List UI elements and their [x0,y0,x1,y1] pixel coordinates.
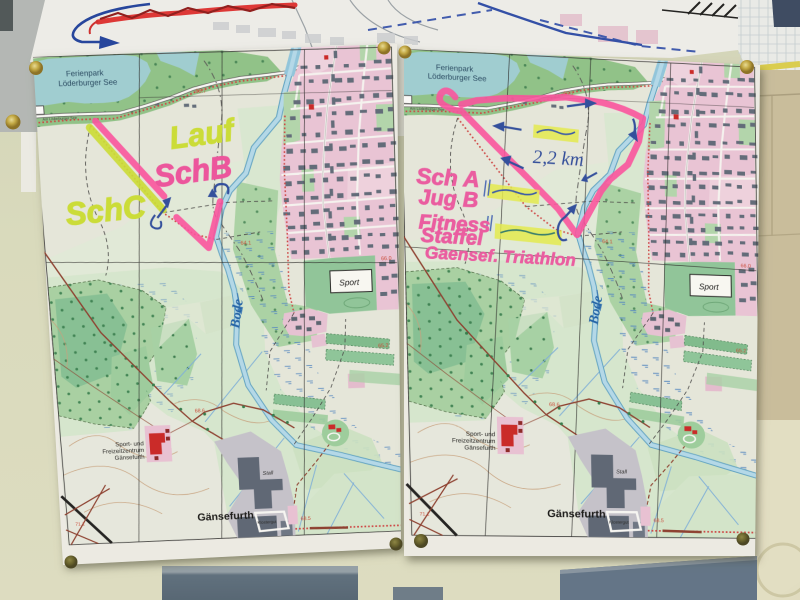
svg-text:2,2 km: 2,2 km [533,147,584,171]
svg-text:Jug B: Jug B [418,185,478,212]
